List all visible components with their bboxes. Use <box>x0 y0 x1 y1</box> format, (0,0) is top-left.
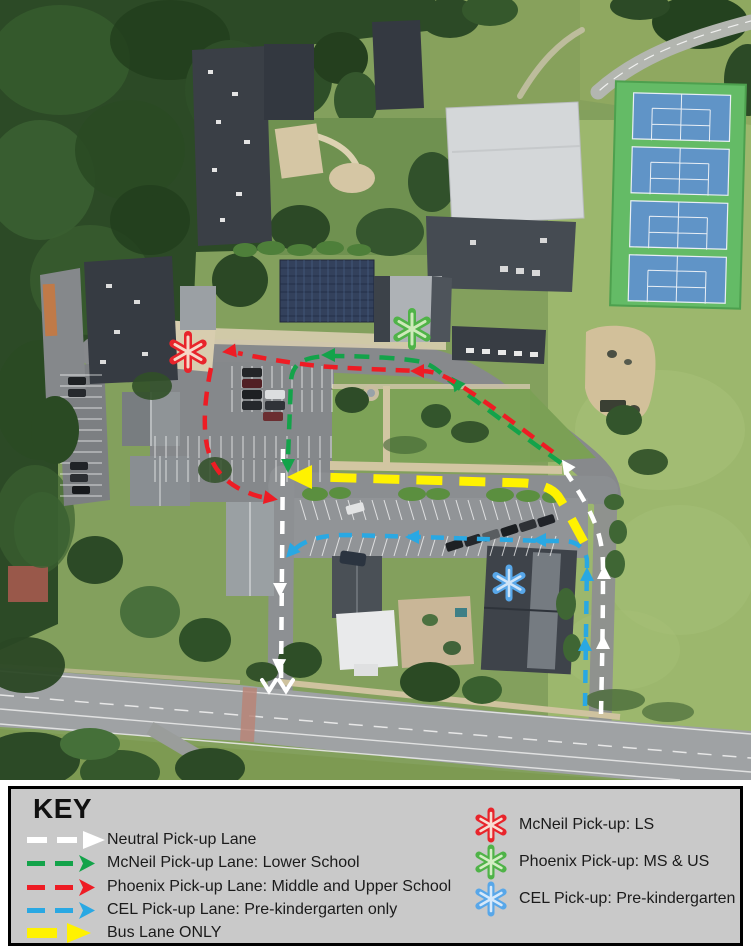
key-lane-label: McNeil Pick-up Lane: Lower School <box>107 854 360 872</box>
key-lane-row-cel: CEL Pick-up Lane: Pre-kindergarten only <box>25 899 397 921</box>
key-lane-row-neutral: Neutral Pick-up Lane <box>25 829 256 851</box>
mcneil-pickup-asterisk-icon <box>473 807 509 843</box>
neutral-lane-arrow-icon <box>25 830 107 850</box>
key-pickup-label: McNeil Pick-up: LS <box>519 816 654 834</box>
key-pickup-row-cel: CEL Pick-up: Pre-kindergarten <box>473 881 735 917</box>
key-lane-row-mcneil: McNeil Pick-up Lane: Lower School <box>25 852 360 874</box>
key-lane-label: Neutral Pick-up Lane <box>107 831 256 849</box>
bus-lane-arrow-icon <box>25 923 107 943</box>
key-lane-label: CEL Pick-up Lane: Pre-kindergarten only <box>107 901 397 919</box>
cel-lane-arrow-icon <box>25 900 107 920</box>
campus-aerial-map <box>0 0 751 780</box>
key-lane-label: Bus Lane ONLY <box>107 924 221 942</box>
cel-pickup-asterisk-icon <box>473 881 509 917</box>
phoenix-pickup-asterisk-icon <box>473 844 509 880</box>
pickup-map-page: KEY Neutral Pick-up Lane McNeil Pick-up … <box>0 0 751 952</box>
map-key-panel: KEY Neutral Pick-up Lane McNeil Pick-up … <box>8 786 743 946</box>
key-lane-row-bus: Bus Lane ONLY <box>25 922 221 944</box>
tennis-courts <box>610 81 746 308</box>
key-pickup-row-phoenix: Phoenix Pick-up: MS & US <box>473 844 709 880</box>
brick-outbuilding <box>8 566 48 602</box>
mcneil-lane-arrow-icon <box>25 853 107 873</box>
main-school-building <box>192 46 272 246</box>
key-pickup-row-mcneil: McNeil Pick-up: LS <box>473 807 654 843</box>
west-building <box>84 256 178 384</box>
key-pickup-label: Phoenix Pick-up: MS & US <box>519 853 709 871</box>
crosswalk <box>240 687 257 742</box>
key-pickup-label: CEL Pick-up: Pre-kindergarten <box>519 890 735 908</box>
phoenix-lane-arrow-icon <box>25 877 107 897</box>
key-lane-row-phoenix: Phoenix Pick-up Lane: Middle and Upper S… <box>25 876 451 898</box>
key-title: KEY <box>33 793 92 825</box>
key-lane-label: Phoenix Pick-up Lane: Middle and Upper S… <box>107 878 451 896</box>
gym-building <box>446 102 584 224</box>
